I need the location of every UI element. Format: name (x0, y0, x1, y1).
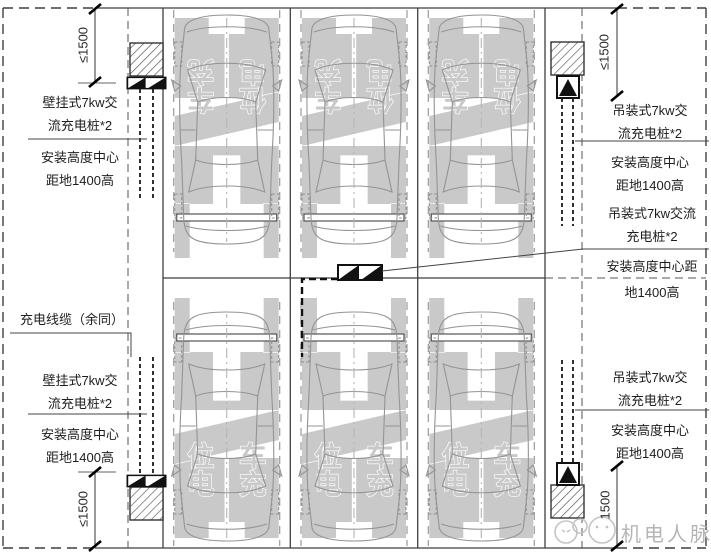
label-right-bottom-note: 安装高度中心 距地1400高 (594, 419, 706, 465)
svg-text:位: 位 (315, 441, 342, 472)
svg-text:位: 位 (367, 84, 394, 115)
svg-text:车: 车 (239, 441, 266, 472)
label-right-mid-charger: 吊装式7kw交流 充电桩*2 (594, 202, 710, 248)
label-right-top-charger: 吊装式7kw交 流充电桩*2 (594, 99, 706, 145)
svg-text:车: 车 (187, 84, 214, 115)
dimension-top-left: ≤1500 (76, 27, 91, 63)
label-left-top-note: 安装高度中心 距地1400高 (28, 146, 132, 192)
label-cable-note: 充电线缆（余同） (8, 312, 136, 328)
label-right-top-note: 安装高度中心 距地1400高 (594, 151, 706, 197)
svg-text:位: 位 (187, 441, 214, 472)
label-left-bottom-charger: 壁挂式7kw交 流充电桩*2 (28, 369, 132, 415)
watermark-logo (555, 517, 615, 543)
svg-text:车: 车 (442, 84, 469, 115)
svg-text:车: 车 (367, 441, 394, 472)
svg-text:位: 位 (494, 84, 521, 115)
label-left-top-charger: 壁挂式7kw交 流充电桩*2 (28, 91, 132, 137)
ceiling-charger-symbol (557, 76, 579, 485)
watermark-text: 机电人脉 (621, 518, 711, 547)
label-right-bottom-charger: 吊装式7kw交 流充电桩*2 (594, 366, 706, 412)
dimension-top-right: ≤1500 (597, 34, 612, 70)
label-right-mid-note: 安装高度中心距 地1400高 (594, 254, 710, 306)
svg-text:车: 车 (315, 84, 342, 115)
dimension-bottom-left: ≤1500 (76, 491, 91, 527)
svg-text:位: 位 (239, 84, 266, 115)
svg-text:车: 车 (494, 441, 521, 472)
floor-plan-canvas: 充 电 车 位 充 电 车 位 充 电 车 位 充 电 车 位 充 电 车 位 (0, 0, 711, 556)
svg-text:位: 位 (442, 441, 469, 472)
label-left-bottom-note: 安装高度中心 距地1400高 (28, 423, 132, 469)
dimension-bottom-right: 1500 (598, 491, 613, 520)
